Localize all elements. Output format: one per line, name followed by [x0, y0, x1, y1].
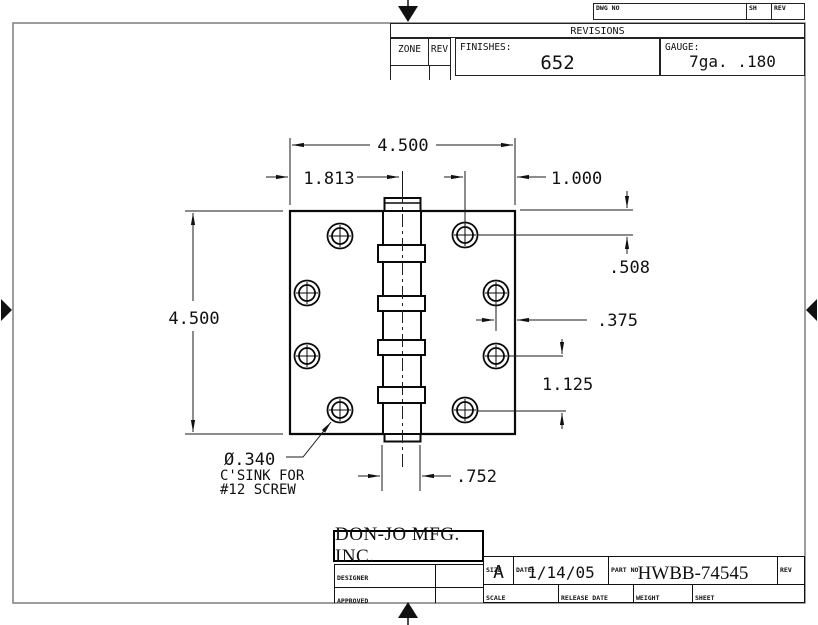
designer-row: DESIGNER [334, 564, 483, 587]
dwg-no-label: DWG NO [594, 4, 747, 19]
dim-knuckle-width-text: .752 [456, 467, 497, 487]
dwg-no-strip: DWG NO SH REV [593, 3, 805, 20]
rev-strip-label: REV [772, 4, 804, 19]
release-date-label: RELEASE DATE [559, 593, 610, 603]
dim-edge-offset-text: .375 [597, 311, 638, 331]
release-date-cell: RELEASE DATE [559, 585, 634, 602]
rev-cell: REV [428, 38, 451, 66]
scale-cell: SCALE [484, 585, 559, 602]
left-leaf [290, 211, 383, 434]
bearing-ring [378, 296, 425, 311]
size-cell: SIZE A [484, 557, 514, 584]
sh-label: SH [747, 4, 772, 19]
dim-top-hole-offset-text: .508 [609, 258, 650, 278]
scale-label: SCALE [484, 593, 508, 603]
hinge-barrel [378, 198, 425, 442]
gauge-value: 7ga. .180 [661, 52, 804, 71]
date-value: 1/14/05 [514, 565, 608, 581]
approved-row: APPROVED [334, 587, 483, 603]
sheet-label: SHEET [693, 593, 717, 603]
dim-hole-spacing-text: 1.125 [542, 375, 593, 395]
dim-overall-width-text: 4.500 [377, 136, 428, 156]
registration-mark-left [1, 299, 12, 321]
note-diameter-text: Ø.340 [224, 450, 275, 470]
hole [295, 344, 320, 369]
hole [295, 281, 320, 306]
designer-label: DESIGNER [335, 573, 370, 583]
dim-overall-height-text: 4.500 [168, 309, 219, 329]
dim-left-offset-text: 1.813 [303, 169, 354, 189]
bearing-ring [378, 387, 425, 403]
part-no-cell: PART NO. HWBB-74545 [609, 557, 778, 584]
hole [453, 398, 478, 423]
note-screw-text: #12 SCREW [220, 482, 296, 498]
bearing-ring [378, 245, 425, 262]
countersink-leader [286, 422, 331, 457]
bearing-ring [378, 340, 425, 355]
hole [453, 223, 478, 248]
part-no-value: HWBB-74545 [609, 564, 777, 583]
rev-title-cell: REV [778, 557, 804, 584]
zone-cell: ZONE [390, 38, 429, 66]
revisions-header: REVISIONS [390, 23, 805, 38]
drawing-sheet: 4.500 1.813 1.000 .508 .375 1.125 .752 4… [0, 0, 818, 625]
weight-label: WEIGHT [634, 593, 661, 603]
company-name-box: DON-JO MFG. INC. [333, 530, 484, 562]
hole [484, 344, 509, 369]
date-cell: DATE: 1/14/05 [514, 557, 609, 584]
right-leaf [421, 211, 515, 434]
weight-cell: WEIGHT [634, 585, 693, 602]
sheet-cell: SHEET [693, 585, 804, 602]
zone-label: ZONE [391, 39, 428, 55]
hole [328, 224, 353, 249]
size-value: A [484, 564, 513, 582]
dim-right-offset-text: 1.000 [551, 169, 602, 189]
gauge-box: GAUGE: 7ga. .180 [660, 38, 805, 76]
title-block-row2: SCALE RELEASE DATE WEIGHT SHEET [483, 585, 805, 603]
rev-title-label: REV [778, 565, 794, 575]
registration-mark-bottom [398, 602, 418, 625]
zone-rev-stub [390, 66, 451, 80]
registration-mark-right [806, 299, 817, 321]
finishes-value: 652 [456, 52, 659, 74]
title-block-row1: SIZE A DATE: 1/14/05 PART NO. HWBB-74545… [483, 556, 805, 585]
hole [328, 398, 353, 423]
finishes-box: FINISHES: 652 [455, 38, 660, 76]
registration-mark-top [398, 0, 418, 22]
rev-label: REV [429, 39, 450, 55]
approved-label: APPROVED [335, 596, 370, 606]
